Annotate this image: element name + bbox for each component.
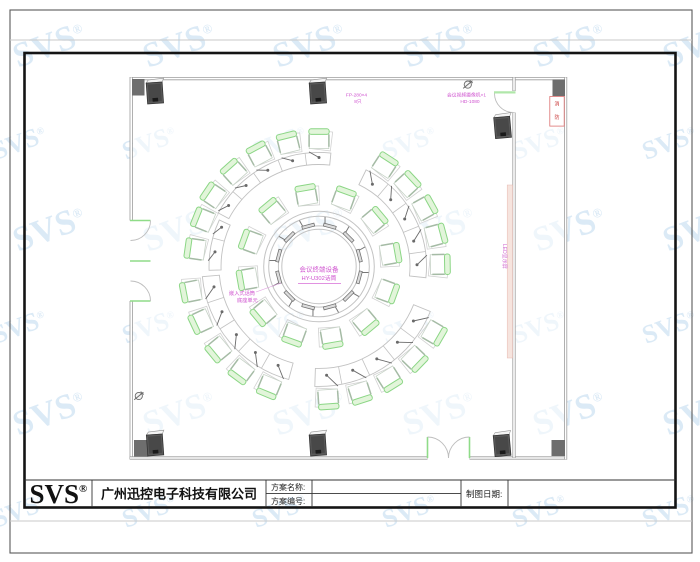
svg-text:HD-1080: HD-1080 <box>460 99 480 105</box>
svg-text:HY-U302话筒: HY-U302话筒 <box>302 274 337 282</box>
svg-text:SVS®: SVS® <box>30 479 88 509</box>
svg-text:FP-280×4: FP-280×4 <box>346 93 368 99</box>
svg-text:方案编号:: 方案编号: <box>271 496 305 506</box>
svg-text:广州迅控电子科技有限公司: 广州迅控电子科技有限公司 <box>101 487 257 502</box>
svg-text:方案名称:: 方案名称: <box>271 482 305 492</box>
svg-text:消: 消 <box>554 101 559 108</box>
svg-text:嵌入式话筒: 嵌入式话筒 <box>229 289 255 297</box>
svg-text:会议终端设备: 会议终端设备 <box>300 265 340 274</box>
svg-text:底座单元: 底座单元 <box>237 296 258 304</box>
svg-text:LED显示屏: LED显示屏 <box>501 244 507 269</box>
svg-text:8只: 8只 <box>354 99 362 105</box>
svg-text:制图日期:: 制图日期: <box>466 489 502 499</box>
svg-text:会议视频摄像机×1: 会议视频摄像机×1 <box>447 92 486 99</box>
svg-text:防: 防 <box>554 114 559 121</box>
